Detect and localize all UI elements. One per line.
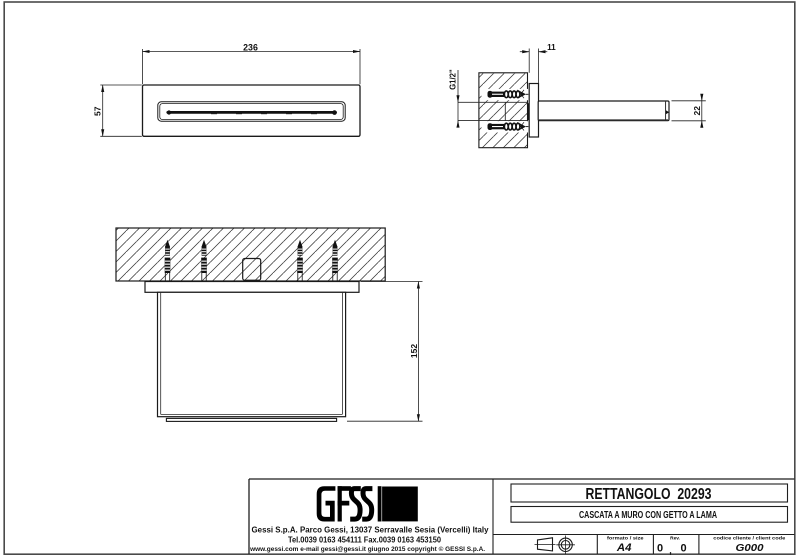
svg-text:formato / size: formato / size (607, 536, 644, 542)
svg-text:11: 11 (547, 43, 556, 52)
svg-text:G1/2": G1/2" (449, 69, 458, 90)
svg-text:0: 0 (680, 542, 686, 554)
svg-text:Rev.: Rev. (670, 536, 680, 542)
svg-text:57: 57 (93, 106, 103, 116)
svg-text:,: , (669, 545, 672, 555)
svg-text:G000: G000 (736, 543, 764, 554)
svg-text:0: 0 (657, 542, 663, 554)
svg-text:236: 236 (243, 42, 258, 52)
svg-text:22: 22 (692, 106, 702, 116)
svg-text:152: 152 (409, 344, 419, 358)
svg-text:A4: A4 (616, 542, 632, 554)
svg-text:RETTANGOLO 20293: RETTANGOLO 20293 (586, 486, 712, 503)
svg-text:codice cliente / client code: codice cliente / client code (713, 536, 785, 542)
svg-text:CASCATA A MURO CON GETTO A LAM: CASCATA A MURO CON GETTO A LAMA (579, 510, 717, 521)
svg-text:Tel.0039 0163 454111 Fax.0039: Tel.0039 0163 454111 Fax.0039 0163 45315… (288, 536, 442, 545)
svg-text:Gessi S.p.A. Parco Gessi, 1303: Gessi S.p.A. Parco Gessi, 13037 Serraval… (252, 525, 490, 534)
svg-text:www.gessi.com e-mail gessi@g: www.gessi.com e-mail gessi@gessi.it giug… (249, 546, 485, 553)
